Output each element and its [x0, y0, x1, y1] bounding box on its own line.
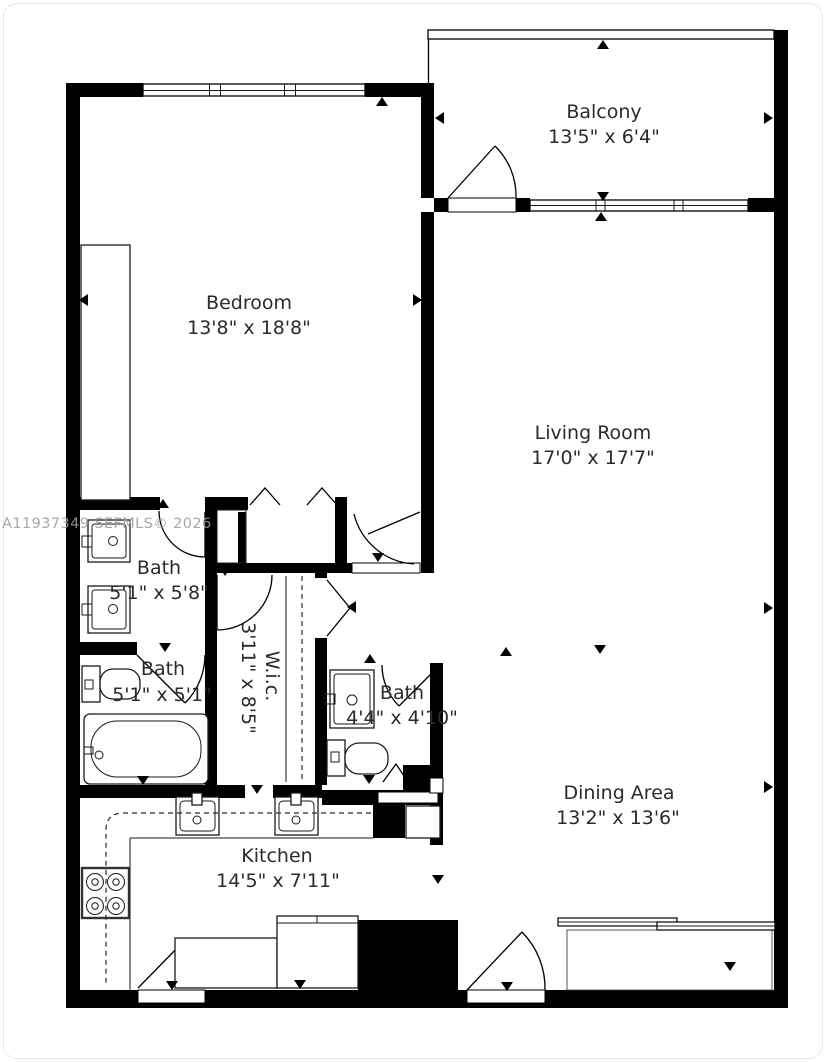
kitchen-label: Kitchen: [241, 845, 312, 867]
balcony-railing: [428, 30, 774, 83]
mls-watermark: A11937349 SEFMLS© 2026: [2, 516, 212, 532]
main-entry-sill: [467, 990, 545, 1003]
living-room-dims: 17'0" x 17'7": [531, 447, 655, 469]
bedroom-dims: 13'8" x 18'8": [187, 317, 311, 339]
kitchen-cabinet: [175, 938, 277, 988]
bath3-dims: 4'4" x 4'10": [346, 707, 458, 729]
wic-label: W.i.c.: [261, 651, 283, 701]
wic-dims: 3'11" x 8'5": [237, 622, 259, 734]
hall-door-sill: [352, 563, 420, 573]
dining-window: [558, 918, 775, 990]
bedroom-window: [143, 84, 365, 96]
bedroom-closet-bifold-doors: [250, 488, 337, 505]
kitchen-sink-2: [275, 793, 318, 835]
main-entry-door: [467, 932, 545, 990]
living-room-label: Living Room: [535, 422, 652, 444]
bedroom-entry-door: [354, 512, 420, 564]
bath2-label: Bath: [141, 658, 185, 680]
balcony-window: [530, 200, 748, 211]
kitchen-entry-sill: [138, 990, 205, 1003]
dishwasher: [406, 806, 440, 838]
kitchen-sink-1: [176, 793, 219, 835]
bath2-dims: 5'1" x 5'1": [112, 684, 212, 706]
plumbing-chase: [403, 765, 430, 790]
balcony-door: [448, 146, 516, 198]
balcony-label: Balcony: [566, 101, 641, 123]
bathtub: [84, 714, 208, 784]
bedroom-label: Bedroom: [206, 292, 292, 314]
wic-hall-door: [327, 580, 350, 636]
bath1-label: Bath: [137, 557, 181, 579]
structural-block: [358, 920, 458, 1000]
dining-area-label: Dining Area: [563, 782, 674, 804]
bath3-door-sill: [378, 792, 438, 803]
dining-area-dims: 13'2" x 13'6": [556, 807, 680, 829]
refrigerator: [277, 916, 358, 988]
bath3-label: Bath: [380, 682, 424, 704]
bath1-dims: 5'1" x 5'8": [109, 582, 209, 604]
balcony-dims: 13'5" x 6'4": [548, 126, 660, 148]
bedroom-wardrobe: [81, 245, 130, 500]
floorplan-page: Balcony 13'5" x 6'4" Bedroom 13'8" x 18'…: [0, 0, 826, 1062]
hall-wall-gap: [430, 778, 443, 793]
balcony-door-sill: [448, 198, 516, 212]
kitchen-dims: 14'5" x 7'11": [216, 870, 340, 892]
window-alcove: [567, 930, 772, 990]
bath3-toilet: [327, 740, 388, 776]
